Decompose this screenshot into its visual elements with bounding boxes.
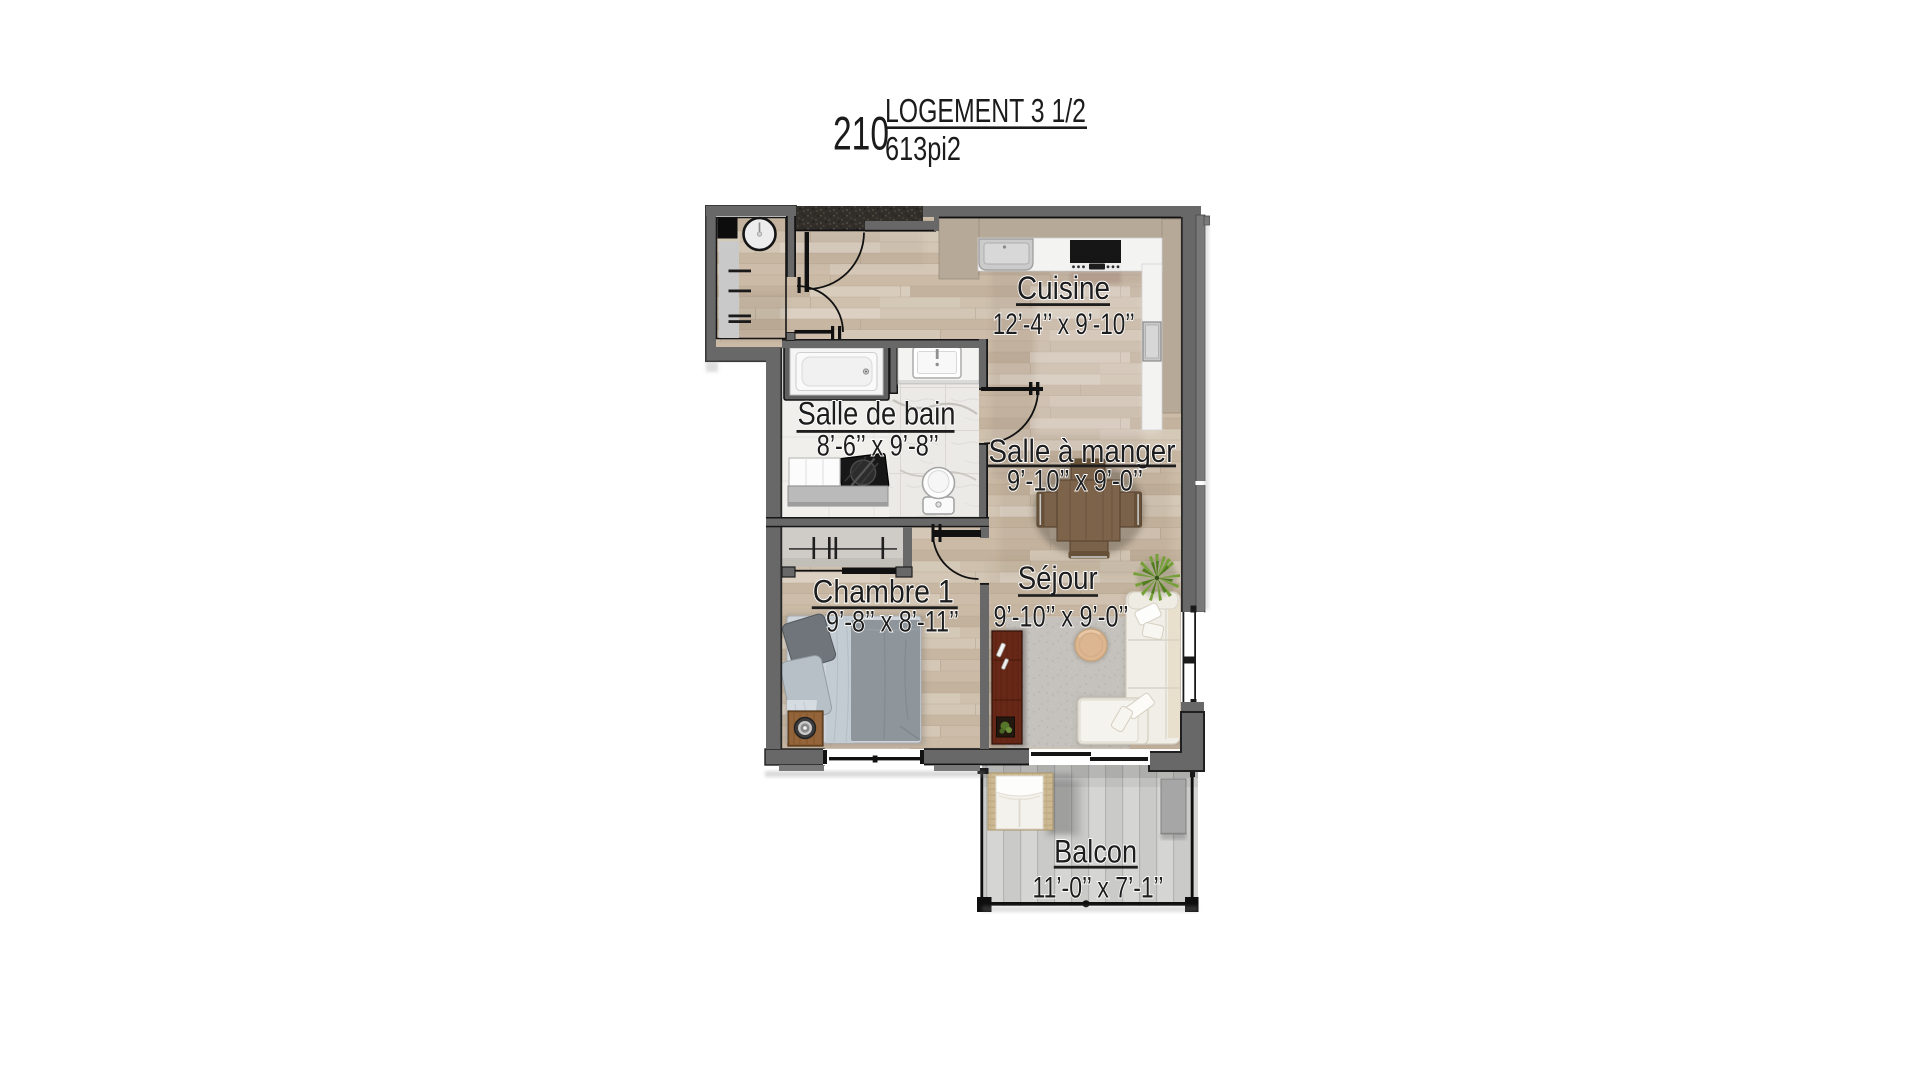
svg-text:Chambre 1: Chambre 1 — [813, 574, 954, 610]
svg-text:9’-8’’ x 8’-11’’: 9’-8’’ x 8’-11’’ — [826, 606, 959, 639]
svg-text:9’-10’’ x 9’-0’’: 9’-10’’ x 9’-0’’ — [994, 601, 1129, 634]
svg-text:11’-0’’ x 7’-1’’: 11’-0’’ x 7’-1’’ — [1033, 872, 1164, 905]
svg-text:Séjour: Séjour — [1018, 560, 1098, 596]
svg-text:210: 210 — [833, 107, 889, 160]
svg-text:LOGEMENT 3 1/2: LOGEMENT 3 1/2 — [885, 92, 1086, 129]
svg-text:8’-6’’ x 9’-8’’: 8’-6’’ x 9’-8’’ — [817, 430, 939, 463]
svg-text:Balcon: Balcon — [1054, 834, 1137, 870]
svg-text:Salle de bain: Salle de bain — [798, 396, 956, 432]
svg-text:12’-4’’ x 9’-10’’: 12’-4’’ x 9’-10’’ — [993, 308, 1135, 341]
svg-text:Cuisine: Cuisine — [1017, 270, 1110, 306]
svg-text:9’-10’’ x 9’-0’’: 9’-10’’ x 9’-0’’ — [1007, 465, 1143, 498]
svg-text:613pi2: 613pi2 — [885, 130, 961, 167]
